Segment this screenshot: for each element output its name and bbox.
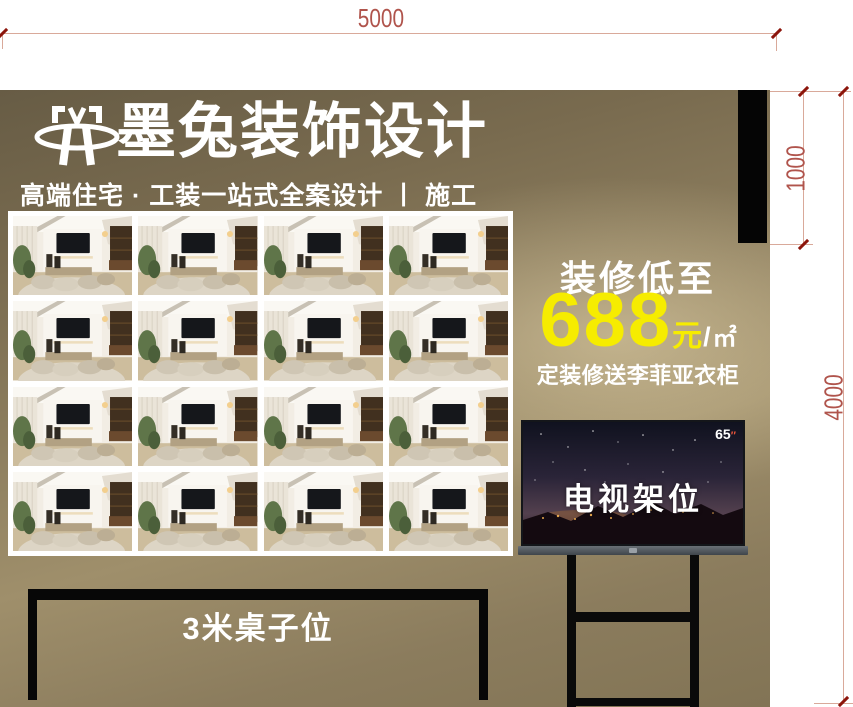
dimension-width-label: 5000: [358, 3, 404, 34]
dimension-1000-label: 1000: [781, 125, 812, 213]
gallery-photo: [264, 301, 383, 380]
gallery-photo: [389, 216, 508, 295]
photo-grid: [8, 211, 513, 556]
tv-soundbar: [518, 546, 748, 555]
price-unit-area: ㎡: [713, 318, 737, 353]
price-unit-currency: 元: [672, 311, 702, 355]
tv-screen: 65″ 电视架位: [521, 420, 745, 546]
dimension-width-extension-left: [2, 35, 3, 49]
promo-price: 688 元 / ㎡: [521, 286, 755, 356]
dimension-extension-bottom: [814, 703, 853, 704]
gallery-photo: [138, 216, 257, 295]
tv-stand-crossbar-upper: [574, 612, 692, 622]
dimension-4000-label: 4000: [819, 354, 850, 442]
rabbit-logo-icon: [34, 103, 120, 171]
price-value: 688: [539, 286, 672, 356]
gallery-photo: [13, 216, 132, 295]
gallery-photo: [13, 387, 132, 466]
header-black-bar: [738, 90, 767, 243]
banner-subtitle: 高端住宅 · 工装一站式全案设计 丨 施工: [20, 176, 477, 212]
gallery-photo: [389, 301, 508, 380]
banner-title: 墨兔装饰设计: [116, 96, 488, 168]
dimension-tick: [838, 696, 849, 707]
tv-brand-logo: [629, 548, 637, 553]
banner-panel: 墨兔装饰设计 高端住宅 · 工装一站式全案设计 丨 施工: [0, 90, 770, 707]
gallery-photo: [389, 472, 508, 551]
gallery-photo: [264, 387, 383, 466]
tv-stand-leg-right: [690, 555, 699, 707]
gallery-photo: [13, 472, 132, 551]
price-unit-slash: /: [703, 322, 711, 353]
promo-gift-line: 定装修送李菲亚衣柜: [521, 358, 755, 390]
gallery-photo: [389, 387, 508, 466]
gallery-photo: [138, 301, 257, 380]
dimension-width-extension-right: [776, 35, 777, 51]
gallery-photo: [138, 387, 257, 466]
table-position-label: 3米桌子位: [28, 603, 488, 648]
gallery-photo: [264, 216, 383, 295]
tv-size-label: 65″: [715, 426, 736, 442]
gallery-photo: [13, 301, 132, 380]
gallery-photo: [138, 472, 257, 551]
booth-design-canvas: 5000 1000 4000 墨兔装饰设计 高端住宅 · 工装一站式全案设计 丨…: [0, 0, 853, 707]
inch-mark: ″: [731, 430, 736, 442]
table-top-edge: [28, 589, 488, 600]
gallery-photo: [264, 472, 383, 551]
tv-stand-crossbar-lower: [574, 698, 692, 706]
tv-stand-leg-left: [567, 555, 576, 707]
tv-position-label: 电视架位: [523, 474, 743, 519]
